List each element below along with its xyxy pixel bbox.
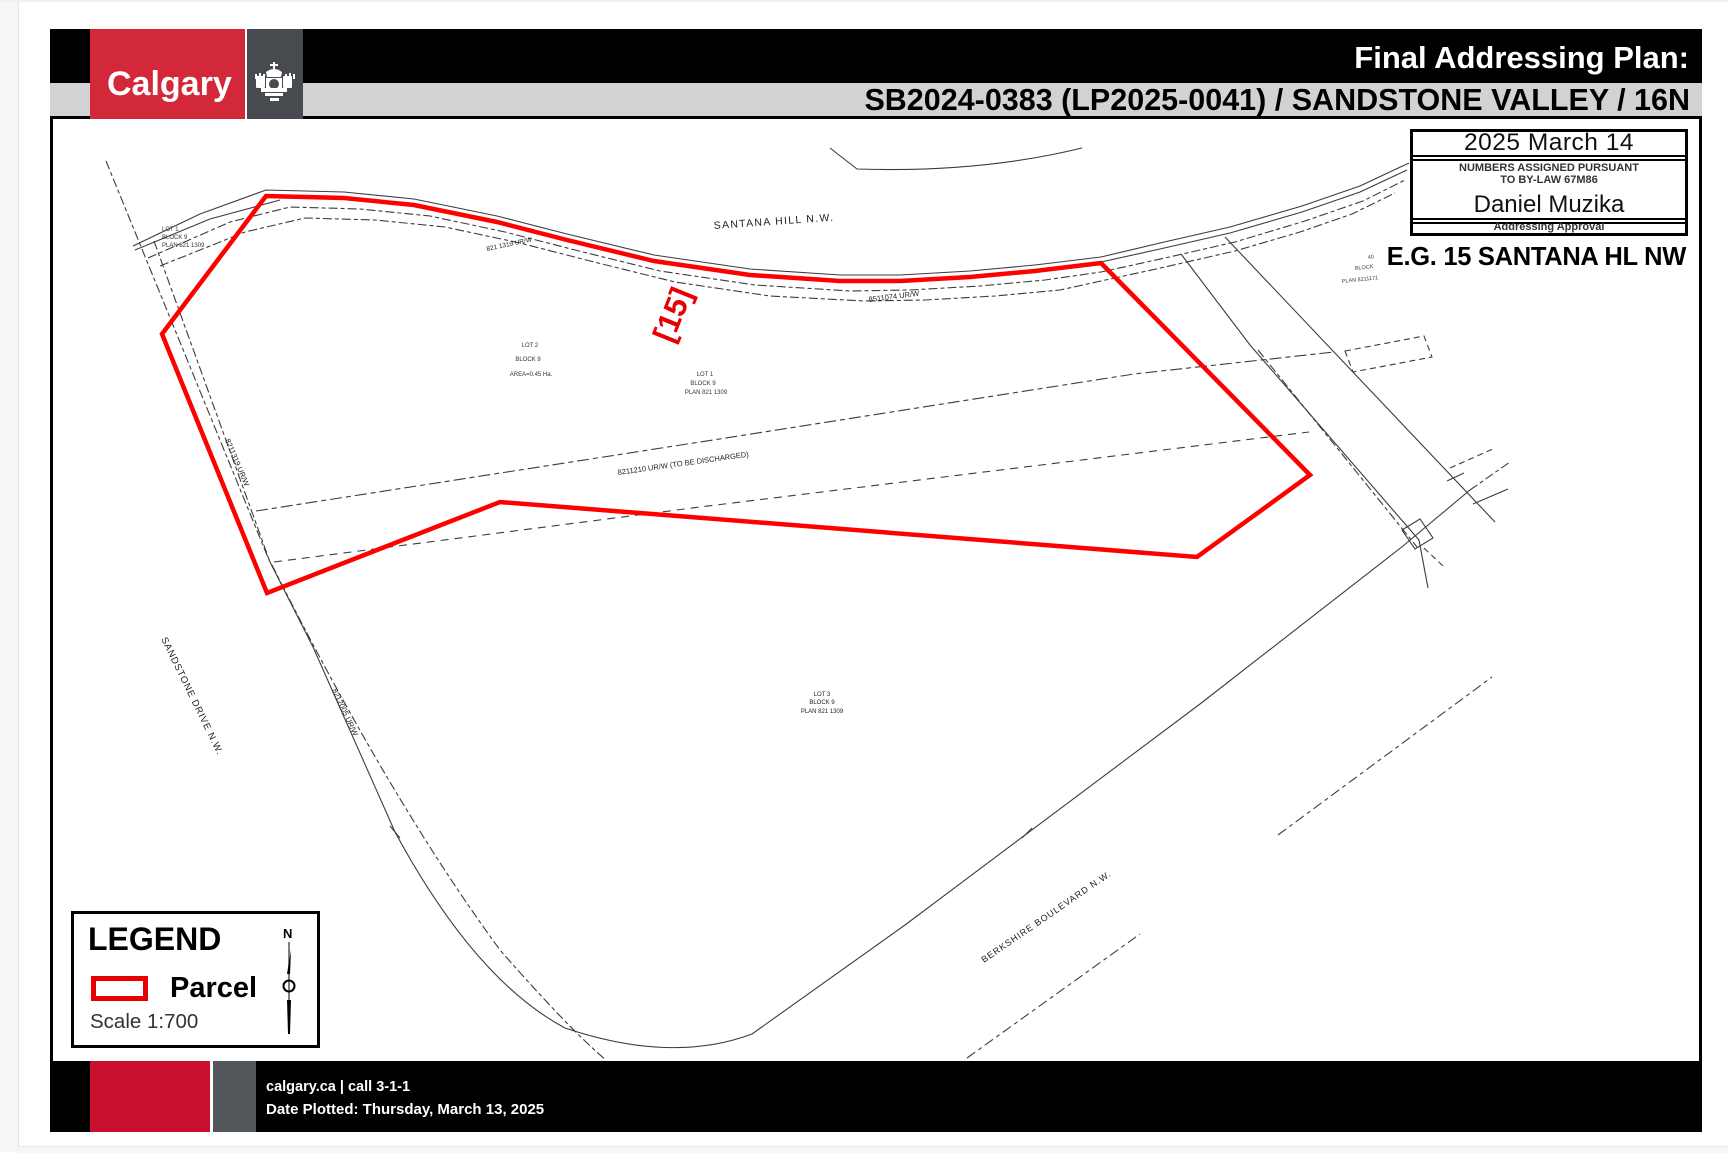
svg-text:LOT 1: LOT 1 (697, 372, 714, 378)
svg-text:SANTANA HILL N.W.: SANTANA HILL N.W. (713, 212, 834, 232)
svg-text:PLAN 821 1309: PLAN 821 1309 (685, 390, 728, 396)
svg-text:LOT 2: LOT 2 (522, 343, 539, 349)
svg-text:8211319 UR/W: 8211319 UR/W (223, 437, 251, 488)
svg-text:SANDSTONE DRIVE N.W.: SANDSTONE DRIVE N.W. (158, 635, 225, 757)
svg-text:PLAN 821 1309: PLAN 821 1309 (801, 709, 844, 715)
svg-text:8212005 UR/W: 8212005 UR/W (330, 687, 360, 738)
svg-text:BLOCK 9: BLOCK 9 (515, 357, 541, 363)
svg-text:BLOCK 9: BLOCK 9 (809, 700, 835, 706)
svg-text:821 1319 UR/W: 821 1319 UR/W (486, 236, 534, 253)
svg-text:PLAN 8211171: PLAN 8211171 (1342, 275, 1379, 285)
svg-text:BLOCK 9: BLOCK 9 (162, 235, 188, 241)
svg-text:AREA=0.45 Ha.: AREA=0.45 Ha. (510, 372, 553, 378)
svg-text:BERKSHIRE BOULEVARD N.W.: BERKSHIRE BOULEVARD N.W. (979, 868, 1113, 964)
svg-text:BLOCK 9: BLOCK 9 (690, 381, 716, 387)
svg-text:LOT 3: LOT 3 (814, 692, 831, 698)
svg-text:8211210 UR/W (TO BE DISCHARGED: 8211210 UR/W (TO BE DISCHARGED) (617, 450, 750, 477)
svg-text:PLAN 821 1309: PLAN 821 1309 (162, 243, 205, 249)
svg-text:[15]: [15] (646, 282, 699, 346)
svg-text:N: N (283, 926, 292, 941)
svg-text:LOT 1: LOT 1 (162, 227, 179, 233)
